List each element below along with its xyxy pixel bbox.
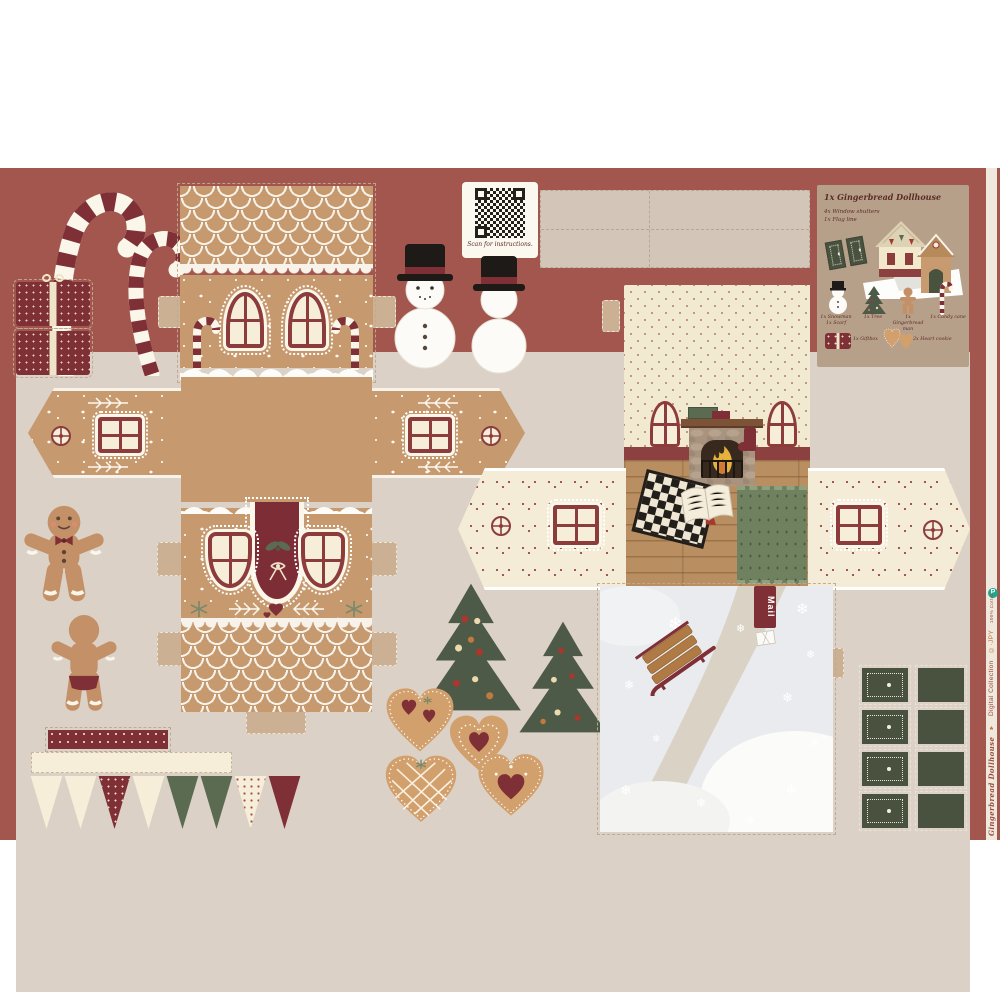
snowflake-icon: ❄	[696, 796, 706, 810]
bunting-flag	[234, 776, 267, 829]
grid-window	[408, 417, 452, 453]
gift-bow-icon	[42, 274, 64, 283]
scarf-strip-piece	[48, 730, 168, 749]
shutter-illustration	[825, 240, 847, 271]
house-front-piece	[181, 502, 372, 712]
chimney-wrap-piece	[540, 190, 810, 268]
side-wall-panel-left	[458, 468, 626, 590]
snowflake-icon: ❄	[620, 782, 632, 799]
candy-cane-icon	[188, 314, 220, 370]
bunting-flag	[64, 776, 97, 829]
item-label: 1x Snowman1x Scarf	[817, 315, 855, 327]
heart-icon: ♥	[988, 724, 995, 731]
item-label: 2x Heart cookie	[913, 337, 967, 343]
grid-window	[836, 505, 882, 545]
qr-finder-icon	[475, 188, 487, 200]
roof-side-panel-left	[28, 388, 181, 478]
heart-cookie-piece	[381, 752, 461, 828]
fine-print: 100% Cotton	[989, 592, 994, 622]
grid-window	[98, 417, 142, 453]
snowflake-icon: ❄	[746, 814, 755, 827]
bunting-flag	[200, 776, 233, 829]
qr-code-icon	[475, 188, 525, 238]
side-wall-panel-right	[808, 468, 970, 590]
fern-branch-icon	[86, 397, 130, 409]
book-on-mantel	[712, 411, 730, 419]
fold-tab	[371, 632, 397, 666]
fold-tab	[157, 632, 183, 666]
flag-line-bunting	[30, 776, 300, 830]
fern-branch-icon	[416, 397, 460, 409]
bunting-flag	[132, 776, 165, 829]
fold-line	[541, 229, 809, 230]
wheel-ornament-icon	[478, 423, 504, 449]
window-shutter-piece	[918, 794, 964, 828]
brand-name: Gingerbread Dollhouse	[987, 737, 996, 836]
tree-icon	[861, 285, 887, 315]
window-shutter-piece	[862, 752, 908, 786]
fold-tab	[371, 542, 397, 576]
gingerbread-man-piece	[14, 503, 114, 609]
heart-cookie-piece	[474, 750, 548, 822]
open-book	[676, 476, 738, 531]
fold-tab	[157, 542, 183, 576]
fire-grate	[701, 460, 743, 478]
giftbox-piece	[16, 331, 90, 375]
wheel-ornament-icon	[488, 513, 514, 539]
gingerbread-man-icon	[899, 287, 917, 315]
snowflake-icon: ❄	[786, 782, 797, 798]
bunting-flag	[166, 776, 199, 829]
house-base-piece	[181, 377, 372, 502]
snow-yard-piece: ❄ ❄ ❄ ❄ ❄ ❄ ❄ ❄ ❄ ❄ ❄ ❄ Mail	[600, 586, 833, 832]
gingerbread-dollhouse-fabric-panel: Scan for instructions. 1x Gingerbread Do…	[0, 0, 1000, 1000]
collection-name: Digital Collection	[988, 660, 995, 716]
snowflake-icon: ❄	[810, 738, 818, 749]
item-label: 1x Candy cane	[927, 315, 969, 321]
giftbox-piece	[16, 282, 90, 326]
window-shutter-piece	[862, 794, 908, 828]
window-shutter-piece	[918, 710, 964, 744]
mail-flag-label: Mail	[766, 596, 776, 618]
christmas-tree-piece	[513, 618, 613, 736]
qr-finder-icon	[513, 188, 525, 200]
stocking-icon	[744, 427, 756, 451]
maker-mark: ©·JPY	[988, 630, 995, 653]
flag-line-strip	[31, 752, 232, 773]
window-shutter-piece	[862, 710, 908, 744]
grid-window	[553, 505, 599, 545]
snowflake-icon: ❄	[796, 600, 809, 618]
panel-title: 1x Gingerbread Dollhouse	[824, 192, 966, 202]
wheel-ornament-icon	[48, 423, 74, 449]
mail-flag: Mail	[754, 586, 776, 628]
instructions-panel: 1x Gingerbread Dollhouse 4x Window shutt…	[817, 185, 969, 367]
roof-side-panel-right	[372, 388, 525, 478]
window-shutters-group	[862, 668, 972, 830]
snowflake-icon: ❄	[782, 690, 793, 706]
wheel-ornament-icon	[920, 517, 946, 543]
item-label: 1x Tree	[857, 315, 889, 321]
firebox	[701, 440, 743, 478]
scalloped-roof	[180, 186, 373, 266]
window-shutter-piece	[918, 752, 964, 786]
sled	[630, 608, 730, 696]
heart-cookie-icon	[883, 327, 915, 351]
window-shutter-piece	[918, 668, 964, 702]
candy-cane-icon	[332, 314, 364, 370]
bunting-flag	[98, 776, 131, 829]
envelope-icon	[755, 630, 776, 647]
fern-branch-icon	[86, 461, 130, 473]
icing-drip-edge	[181, 618, 372, 633]
item-label: 1x Giftbox	[853, 337, 887, 343]
giftbox-icon	[825, 333, 851, 349]
scalloped-skirt	[181, 622, 372, 712]
holly-sprig-icon	[263, 538, 293, 588]
fern-branch-icon	[416, 461, 460, 473]
fold-line	[649, 191, 650, 267]
snowflake-icon: ❄	[736, 622, 745, 635]
snowflake-icon: ❄	[652, 734, 660, 745]
bunting-flag	[30, 776, 63, 829]
candy-cane-icon	[937, 281, 953, 315]
window-shutter-piece	[862, 668, 908, 702]
panel-subtitle: 1x Flag line	[824, 217, 857, 223]
rug	[737, 486, 807, 584]
selvage-strip: P Gingerbread Dollhouse ♥ Digital Collec…	[986, 168, 1000, 840]
snowman-pieces	[383, 234, 541, 380]
snowflake-icon: ❄	[806, 648, 815, 661]
house-back-wall-piece	[180, 186, 373, 380]
snowman-icon	[825, 279, 851, 315]
front-door	[250, 502, 304, 604]
gingerbread-man-piece	[46, 610, 122, 728]
bunting-flag	[268, 776, 301, 829]
selvage-text: Gingerbread Dollhouse ♥ Digital Collecti…	[987, 416, 996, 836]
interior-room-piece	[616, 283, 814, 589]
